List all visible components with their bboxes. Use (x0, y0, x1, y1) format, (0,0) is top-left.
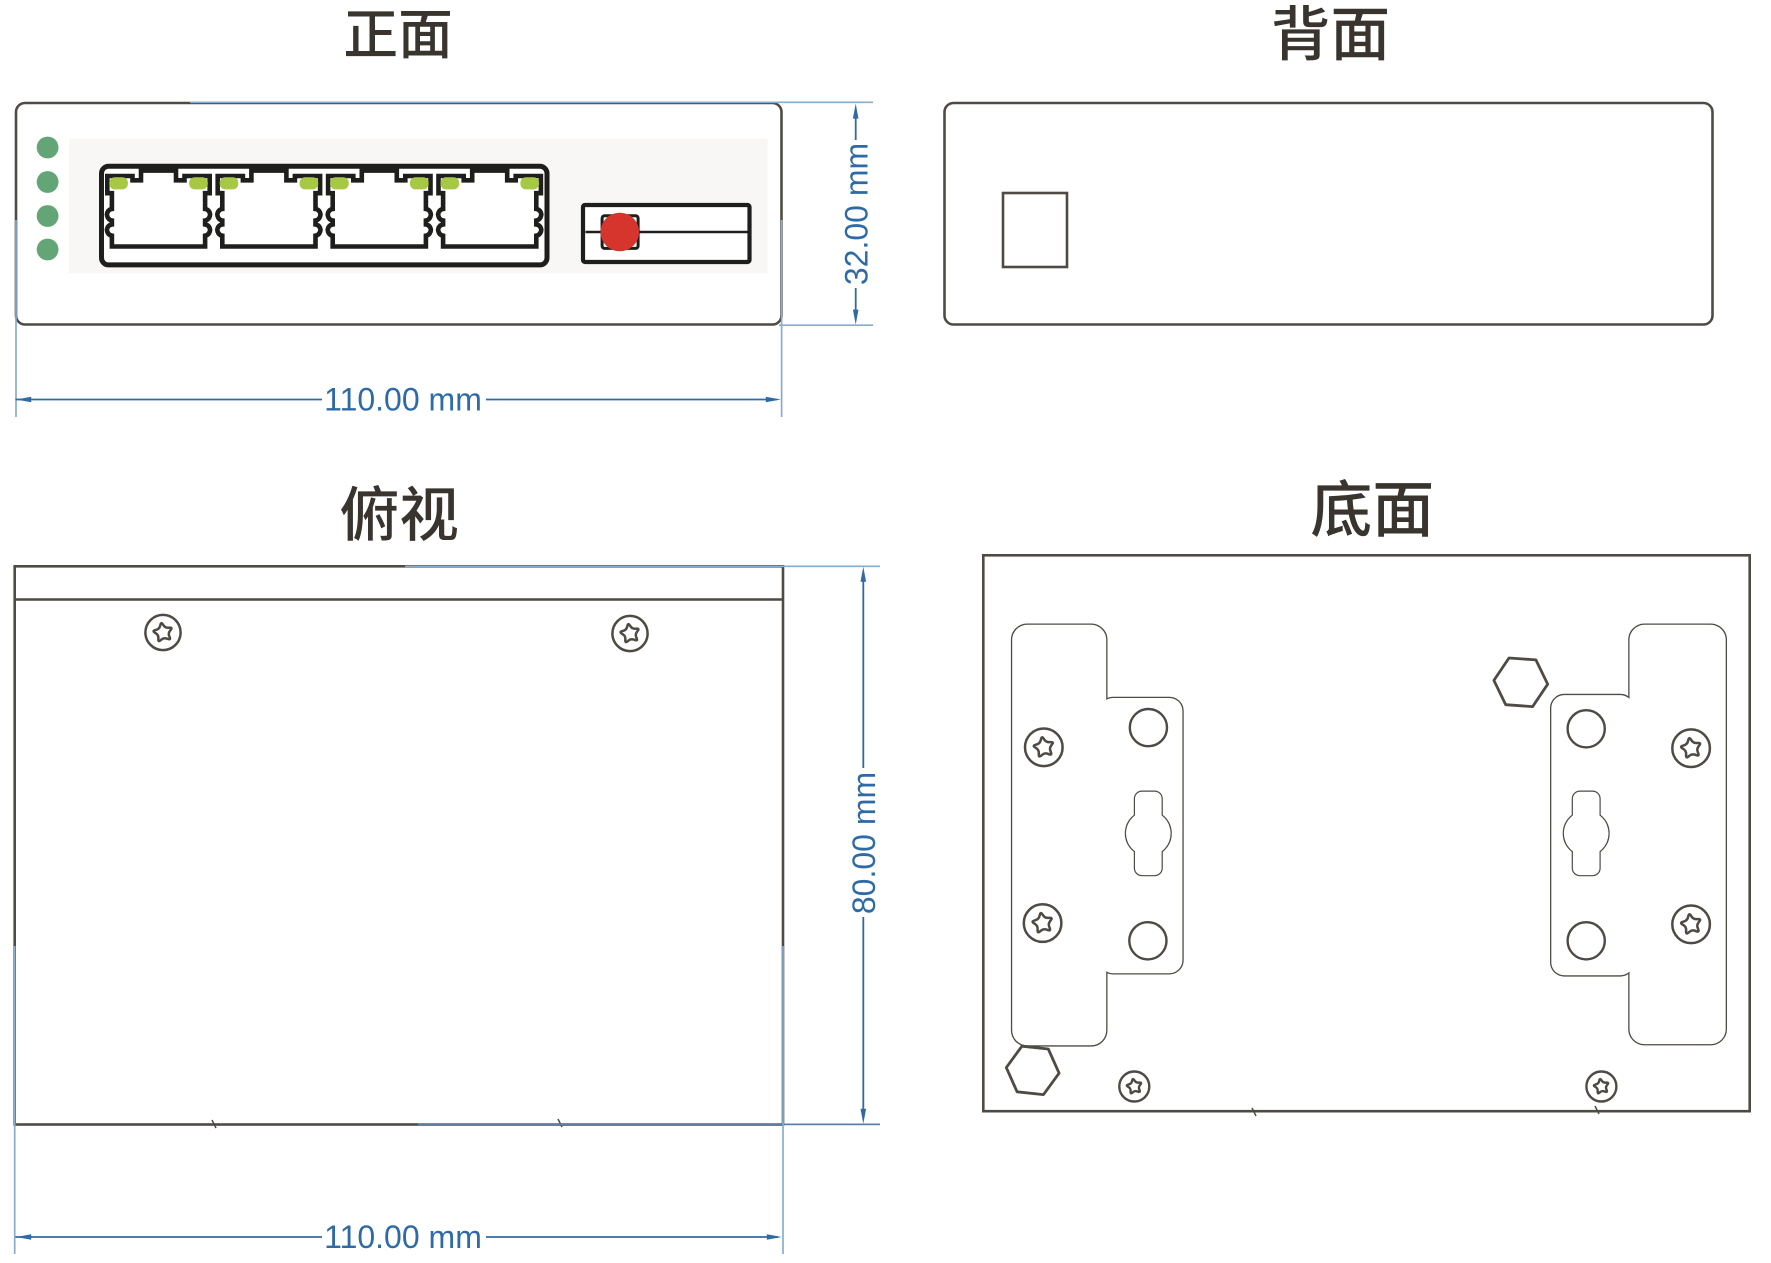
svg-text:80.00 mm: 80.00 mm (846, 772, 882, 914)
svg-text:110.00 mm: 110.00 mm (324, 382, 482, 418)
svg-text:32.00 mm: 32.00 mm (839, 143, 875, 285)
svg-text:110.00 mm: 110.00 mm (324, 1219, 482, 1255)
